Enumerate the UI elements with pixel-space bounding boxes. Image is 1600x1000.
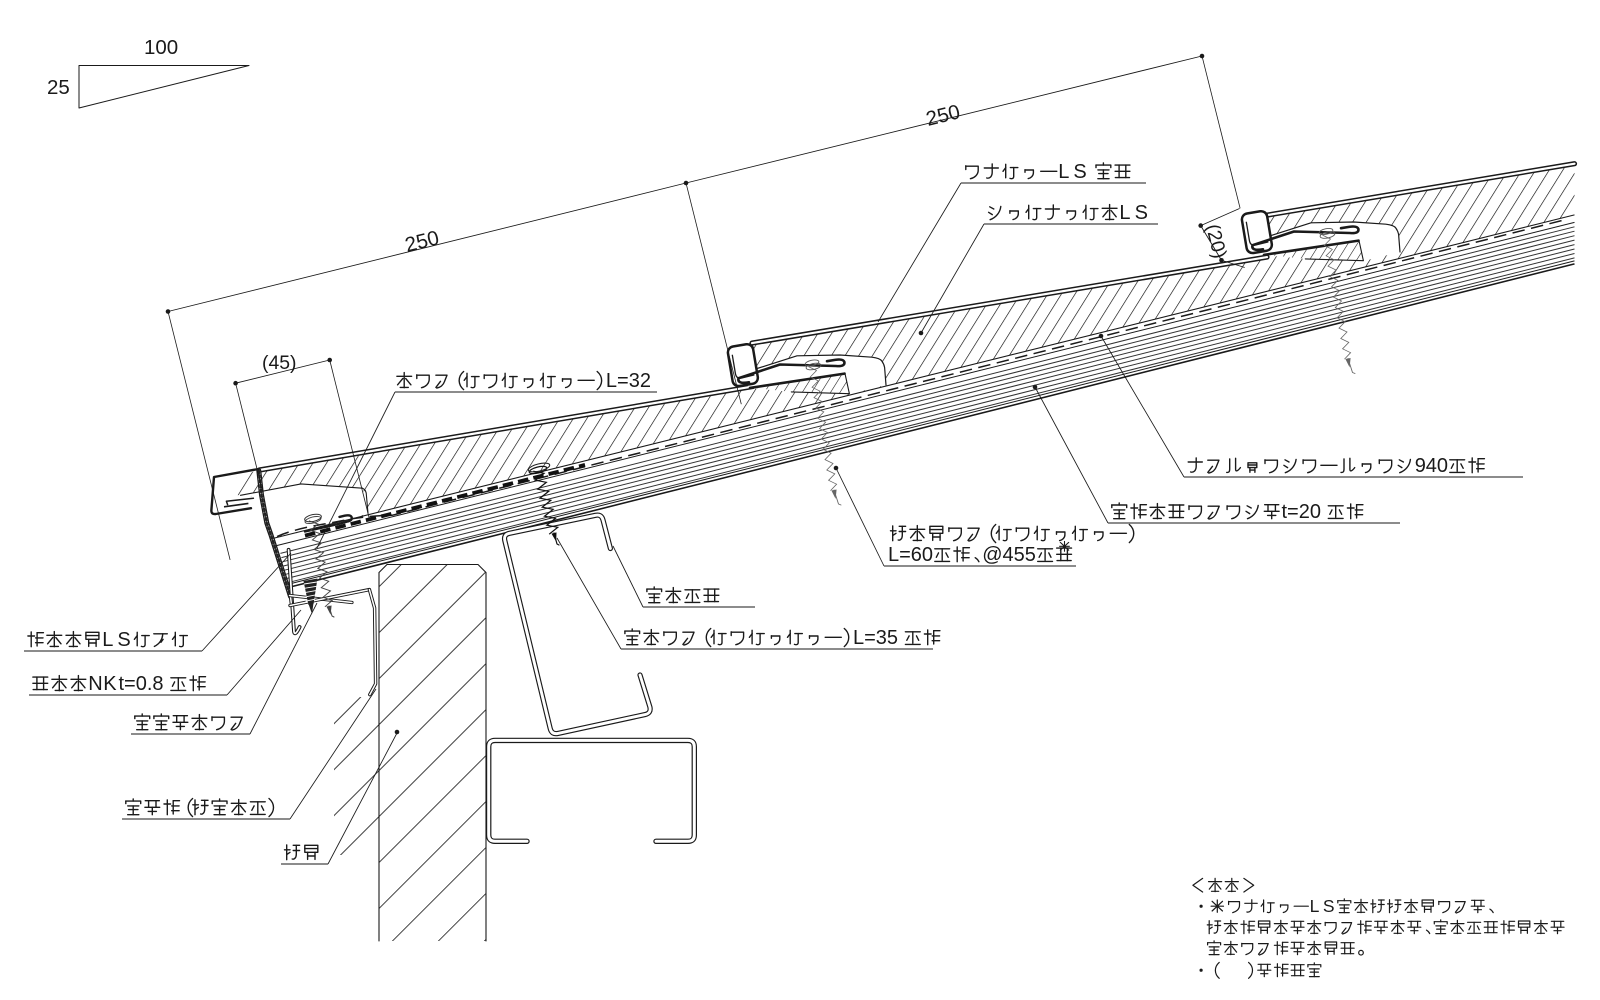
svg-text:K: K [103, 673, 117, 695]
svg-text:100: 100 [144, 36, 178, 59]
svg-text:L=32: L=32 [606, 370, 651, 392]
svg-text:N: N [88, 673, 102, 695]
svg-text:L: L [1058, 161, 1069, 183]
svg-text:t=0.8: t=0.8 [119, 673, 164, 695]
svg-text:940: 940 [1415, 455, 1448, 477]
svg-text:S: S [1073, 161, 1086, 183]
svg-text:S: S [1323, 896, 1335, 916]
svg-text:@455: @455 [982, 544, 1036, 566]
svg-text:L=60: L=60 [888, 544, 933, 566]
svg-text:L=35: L=35 [853, 627, 898, 649]
svg-text:L: L [1310, 896, 1320, 916]
svg-text:t=20: t=20 [1282, 501, 1321, 523]
svg-text:L: L [1119, 202, 1130, 224]
svg-text:L: L [102, 629, 113, 651]
svg-text:S: S [117, 629, 130, 651]
svg-text:25: 25 [47, 76, 70, 99]
svg-text:(45): (45) [262, 352, 296, 374]
svg-text:S: S [1135, 202, 1148, 224]
